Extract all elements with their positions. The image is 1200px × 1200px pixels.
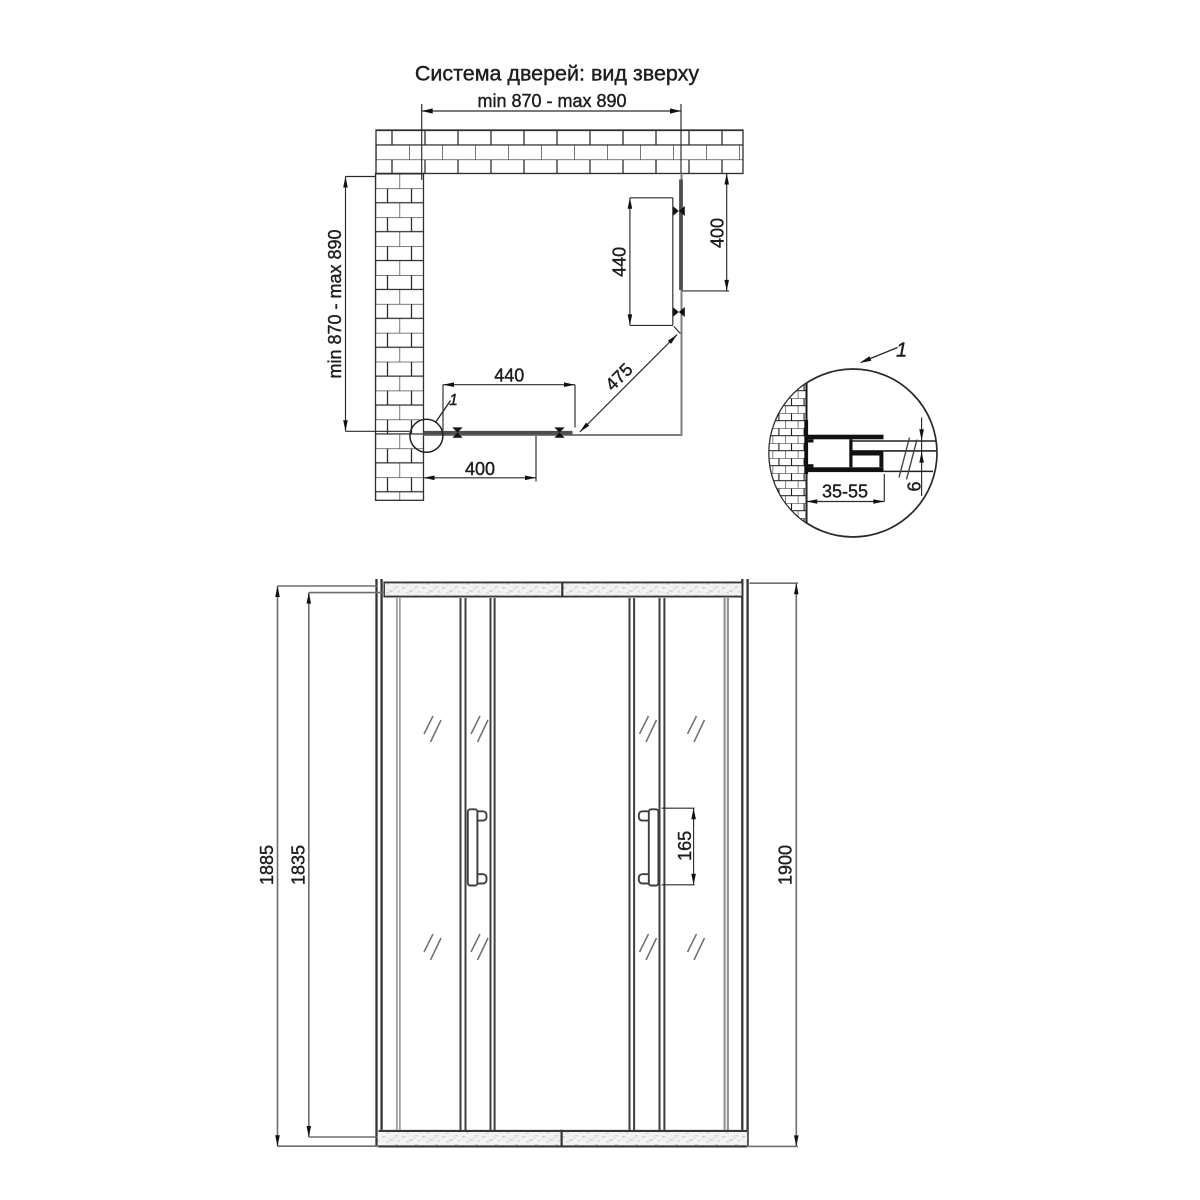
svg-text:6: 6 [904, 481, 924, 491]
svg-text:400: 400 [465, 459, 495, 479]
svg-text:400: 400 [707, 218, 727, 248]
svg-text:440: 440 [494, 366, 524, 386]
svg-text:165: 165 [675, 831, 695, 861]
svg-text:1: 1 [896, 340, 907, 362]
svg-text:1: 1 [449, 392, 458, 409]
svg-text:35-55: 35-55 [822, 482, 868, 502]
svg-text:1900: 1900 [775, 845, 795, 885]
svg-text:min 870 - max 890: min 870 - max 890 [477, 91, 626, 111]
svg-text:min 870 - max 890: min 870 - max 890 [325, 229, 345, 378]
svg-text:475: 475 [601, 359, 636, 394]
svg-text:1885: 1885 [257, 845, 277, 885]
svg-text:440: 440 [609, 247, 629, 277]
svg-text:Система дверей: вид зверху: Система дверей: вид зверху [415, 62, 700, 86]
svg-text:1835: 1835 [288, 845, 308, 885]
